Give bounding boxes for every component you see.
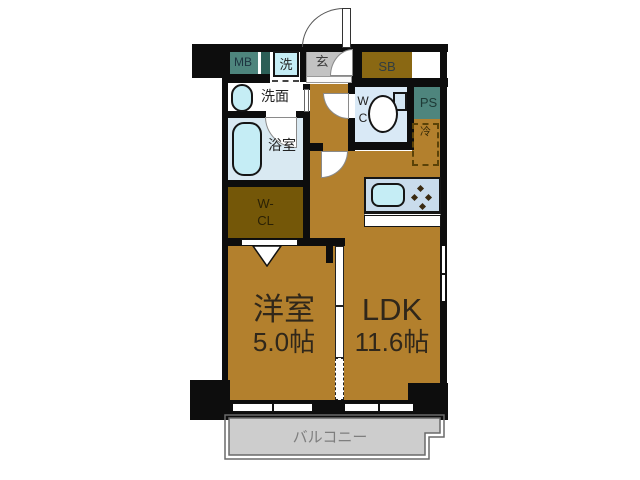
balcony-label: バルコニー [270,428,390,446]
wall-hall-right-a [348,87,355,94]
kitchen-sink [371,183,405,207]
entrance-step [306,76,352,83]
toilet-bowl [368,95,398,133]
bathroom-label: 浴室 [262,136,302,153]
wall-hall-cross-stub [303,143,323,151]
wall-hall-left-b [303,112,310,243]
wall-bath-closet [222,180,310,187]
wall-washroom-bath-a [222,111,266,118]
bathtub [232,122,262,176]
washroom-label: 洗面 [253,87,297,104]
wall-wc-bottom [348,142,414,150]
entrance-label: 玄 [306,46,338,76]
wall-divider-stub [326,246,333,263]
toilet-label-c: C [356,110,370,126]
closet-folding-door-triangle [252,245,282,267]
sliding-door-panel-3 [335,358,344,400]
floor-plan: MB 洗 玄 SB PS 洗面 W C 浴室 W- CL 冷 洋室 5.0帖 L… [0,0,640,480]
wall-under-mb [222,74,270,83]
shoe-box-label: SB [362,52,412,80]
meter-box-label: MB [228,49,258,74]
ldk-size: 11.6帖 [336,326,448,358]
western-room-size: 5.0帖 [230,326,338,358]
washing-machine-label: 洗 [273,51,299,77]
closet-label-line1: W- [257,196,273,213]
entry-door-leaf [342,8,351,48]
entry-door-arc [302,8,344,47]
western-room-name: 洋室 [230,292,338,326]
toilet-label-w: W [356,93,370,109]
refrigerator-label: 冷 [412,125,439,139]
washer-nook-screen [272,80,299,82]
closet-label-line2: CL [257,213,274,230]
washroom-door [304,89,309,112]
closet-label: W- CL [228,192,303,234]
washroom-sink [231,84,253,112]
wall-topleft-block [192,44,230,78]
pipe-space-label: PS [414,85,443,119]
ldk-name: LDK [340,292,444,326]
shaft-box [261,49,270,74]
kitchen-counter-front [364,213,441,227]
